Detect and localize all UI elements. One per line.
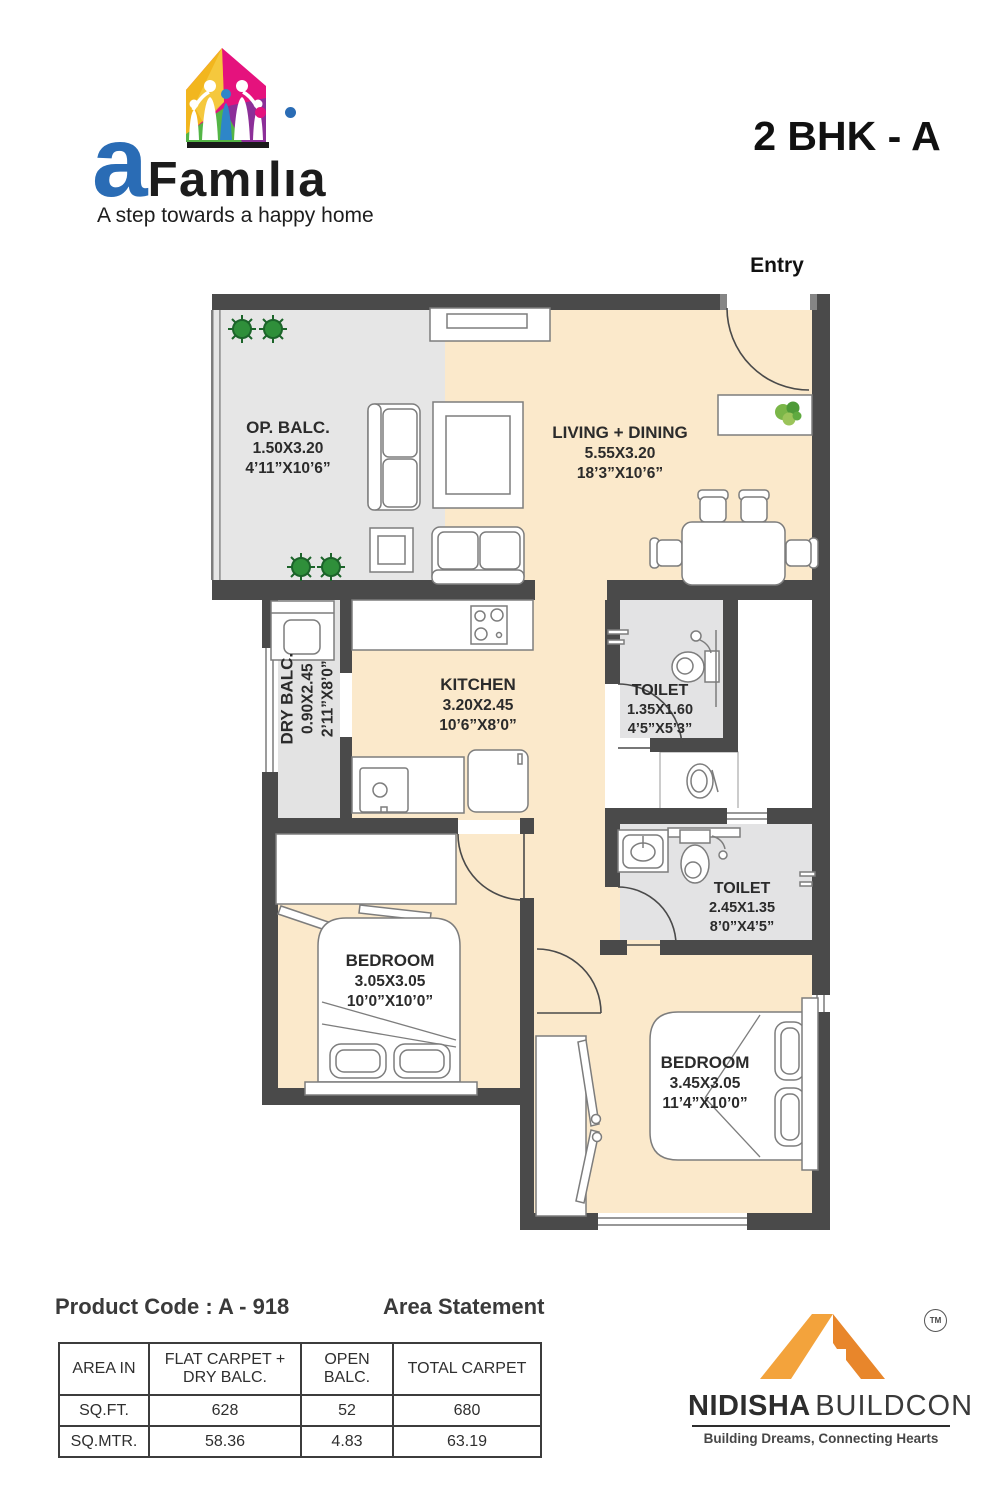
trademark-badge: TM xyxy=(924,1309,947,1332)
room-label-bedroom-1: BEDROOM 3.05X3.05 10’0”X10’0” xyxy=(300,950,480,1011)
room-label-kitchen: KITCHEN 3.20X2.45 10’6”X8’0” xyxy=(378,674,578,735)
col-header-total-carpet: TOTAL CARPET xyxy=(393,1343,541,1395)
side-table xyxy=(370,528,413,572)
room-label-dry-balc: DRY BALC. 0.90X2.45 2’11”X8’0” xyxy=(276,618,337,780)
builder-underline xyxy=(692,1425,950,1427)
fridge-icon xyxy=(468,750,528,812)
table-header-row: AREA IN FLAT CARPET + DRY BALC. OPEN BAL… xyxy=(59,1343,541,1395)
wardrobe-1 xyxy=(276,834,456,904)
wc-icon-2 xyxy=(680,830,710,883)
floor-plan xyxy=(0,0,1000,1500)
room-label-living-dining: LIVING + DINING 5.55X3.20 18’3”X10’6” xyxy=(515,422,725,483)
wash-basin-icon-2 xyxy=(618,830,668,872)
floorplan-page: { "header": { "brand": { "wordmark": "aF… xyxy=(0,0,1000,1500)
col-header-flat-carpet: FLAT CARPET + DRY BALC. xyxy=(149,1343,301,1395)
col-header-open-balc: OPEN BALC. xyxy=(301,1343,393,1395)
builder-name-light: BUILDCON xyxy=(815,1390,973,1422)
wc-icon-1 xyxy=(672,651,719,682)
room-label-bedroom-2: BEDROOM 3.45X3.05 11’4”X10’0” xyxy=(612,1052,798,1113)
builder-name-bold: NIDISHA xyxy=(688,1390,811,1422)
table-row-sqft: SQ.FT. 628 52 680 xyxy=(59,1395,541,1426)
product-code: Product Code : A - 918 xyxy=(55,1294,289,1320)
area-statement-title: Area Statement xyxy=(383,1294,544,1320)
room-label-toilet-1: TOILET 1.35X1.60 4’5”X5’3” xyxy=(592,681,728,739)
room-label-op-balc: OP. BALC. 1.50X3.20 4’11”X10’6” xyxy=(198,417,378,478)
sofa-two-seat-horizontal xyxy=(432,527,524,584)
table-row-sqmtr: SQ.MTR. 58.36 4.83 63.19 xyxy=(59,1426,541,1457)
sink-icon xyxy=(360,768,408,812)
coffee-table xyxy=(433,402,523,508)
builder-tagline: Building Dreams, Connecting Hearts xyxy=(688,1431,954,1446)
nidisha-roof-icon xyxy=(755,1306,891,1382)
builder-name: NIDISHA BUILDCON xyxy=(688,1390,954,1423)
room-label-toilet-2: TOILET 2.45X1.35 8’0”X4’5” xyxy=(674,879,810,937)
stove-icon xyxy=(471,606,507,644)
area-statement-table: AREA IN FLAT CARPET + DRY BALC. OPEN BAL… xyxy=(58,1342,542,1458)
col-header-area-in: AREA IN xyxy=(59,1343,149,1395)
tv-unit xyxy=(430,308,550,341)
